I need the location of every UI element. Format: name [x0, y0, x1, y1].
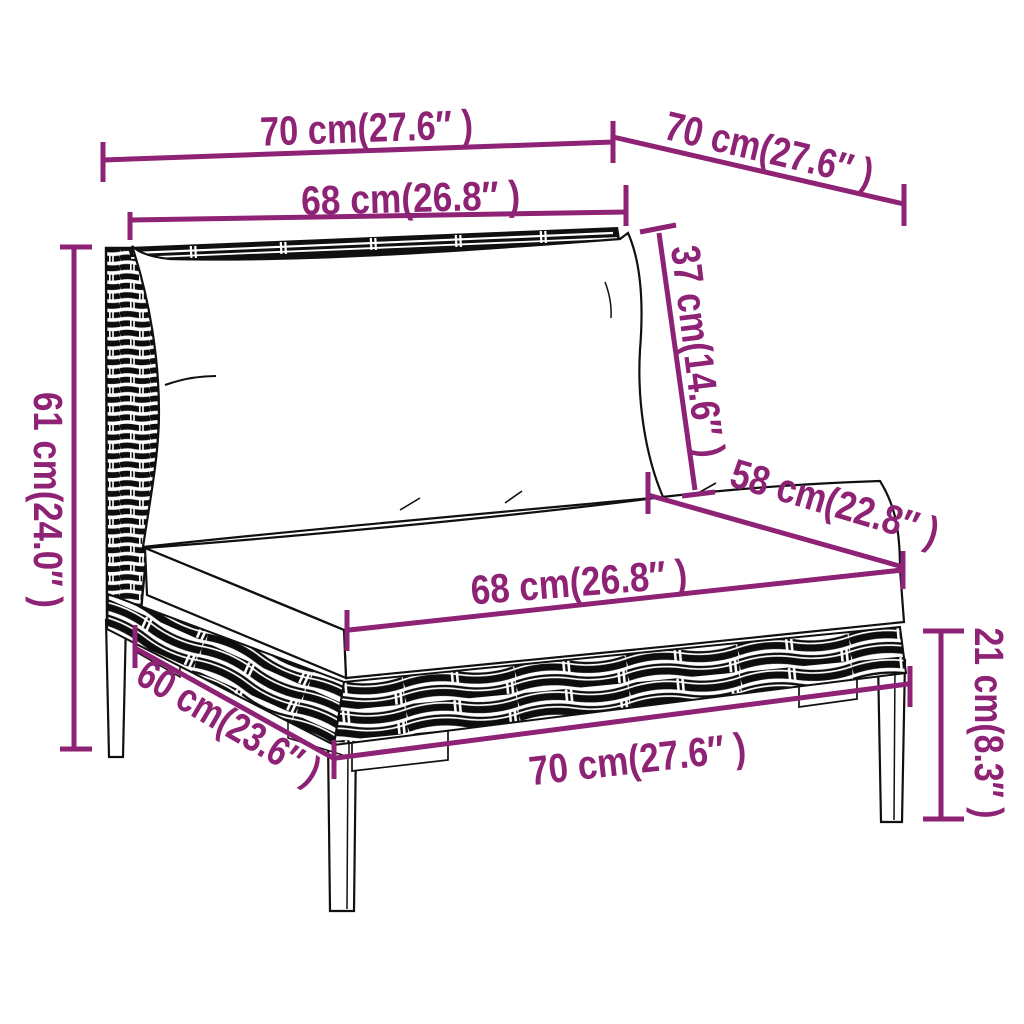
svg-text:61 cm(24.0″ ): 61 cm(24.0″ ) [25, 392, 71, 608]
svg-text:21 cm(8.3″ ): 21 cm(8.3″ ) [966, 628, 1012, 819]
svg-text:70 cm(27.6″ ): 70 cm(27.6″ ) [259, 101, 473, 154]
svg-text:68 cm(26.8″ ): 68 cm(26.8″ ) [301, 172, 521, 224]
